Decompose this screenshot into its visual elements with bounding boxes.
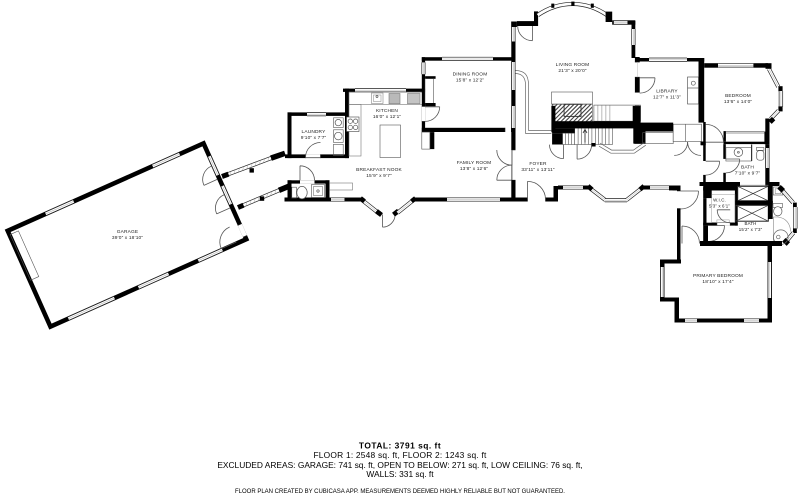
svg-text:13’6” x 14’0”: 13’6” x 14’0” bbox=[724, 99, 753, 105]
svg-text:FOYER: FOYER bbox=[529, 161, 547, 167]
svg-text:FLOOR PLAN CREATED BY CUBICASA: FLOOR PLAN CREATED BY CUBICASA APP. MEAS… bbox=[235, 489, 565, 495]
svg-text:BREAKFAST NOOK: BREAKFAST NOOK bbox=[356, 167, 402, 173]
svg-text:BATH: BATH bbox=[741, 165, 754, 171]
svg-text:15’2” x 7’3”: 15’2” x 7’3” bbox=[739, 227, 763, 232]
svg-text:9’10” x 7’7”: 9’10” x 7’7” bbox=[301, 135, 327, 141]
svg-text:W.I.C.: W.I.C. bbox=[713, 198, 726, 203]
svg-text:FLOOR 1: 2548 sq. ft, FLOOR 2:: FLOOR 1: 2548 sq. ft, FLOOR 2: 1243 sq. … bbox=[313, 450, 487, 460]
svg-text:WALLS: 331 sq. ft: WALLS: 331 sq. ft bbox=[366, 469, 434, 479]
svg-text:12’7” x 11’3”: 12’7” x 11’3” bbox=[653, 95, 681, 101]
svg-text:FAMILY ROOM: FAMILY ROOM bbox=[457, 160, 492, 166]
svg-text:LIBRARY: LIBRARY bbox=[656, 89, 678, 95]
svg-text:7’10” x 9’7”: 7’10” x 9’7” bbox=[735, 171, 761, 177]
svg-text:TOTAL: 3791 sq. ft: TOTAL: 3791 sq. ft bbox=[359, 441, 441, 451]
svg-text:DINING ROOM: DINING ROOM bbox=[453, 72, 488, 78]
svg-text:PRIMARY BEDROOM: PRIMARY BEDROOM bbox=[693, 273, 743, 279]
svg-text:5’3” x 6’1”: 5’3” x 6’1” bbox=[709, 204, 730, 209]
svg-text:15’8” x 12’2”: 15’8” x 12’2” bbox=[456, 78, 485, 84]
svg-text:LIVING ROOM: LIVING ROOM bbox=[556, 62, 590, 68]
svg-text:15’9” x 9’7”: 15’9” x 9’7” bbox=[366, 173, 392, 179]
svg-text:13’8” x 12’6”: 13’8” x 12’6” bbox=[460, 166, 489, 172]
svg-text:16’0” x 12’1”: 16’0” x 12’1” bbox=[373, 114, 402, 120]
svg-text:21’3” x 20’0”: 21’3” x 20’0” bbox=[558, 68, 587, 74]
svg-text:GARAGE: GARAGE bbox=[117, 229, 138, 235]
svg-text:BATH: BATH bbox=[745, 221, 757, 226]
svg-text:KITCHEN: KITCHEN bbox=[376, 108, 398, 114]
svg-text:LAUNDRY: LAUNDRY bbox=[302, 129, 327, 135]
svg-text:39’0” x 18’10”: 39’0” x 18’10” bbox=[112, 235, 143, 241]
svg-text:18’10” x 17’4”: 18’10” x 17’4” bbox=[702, 279, 733, 285]
svg-text:BEDROOM: BEDROOM bbox=[725, 93, 751, 99]
svg-text:33’11” x 13’11”: 33’11” x 13’11” bbox=[521, 167, 555, 173]
